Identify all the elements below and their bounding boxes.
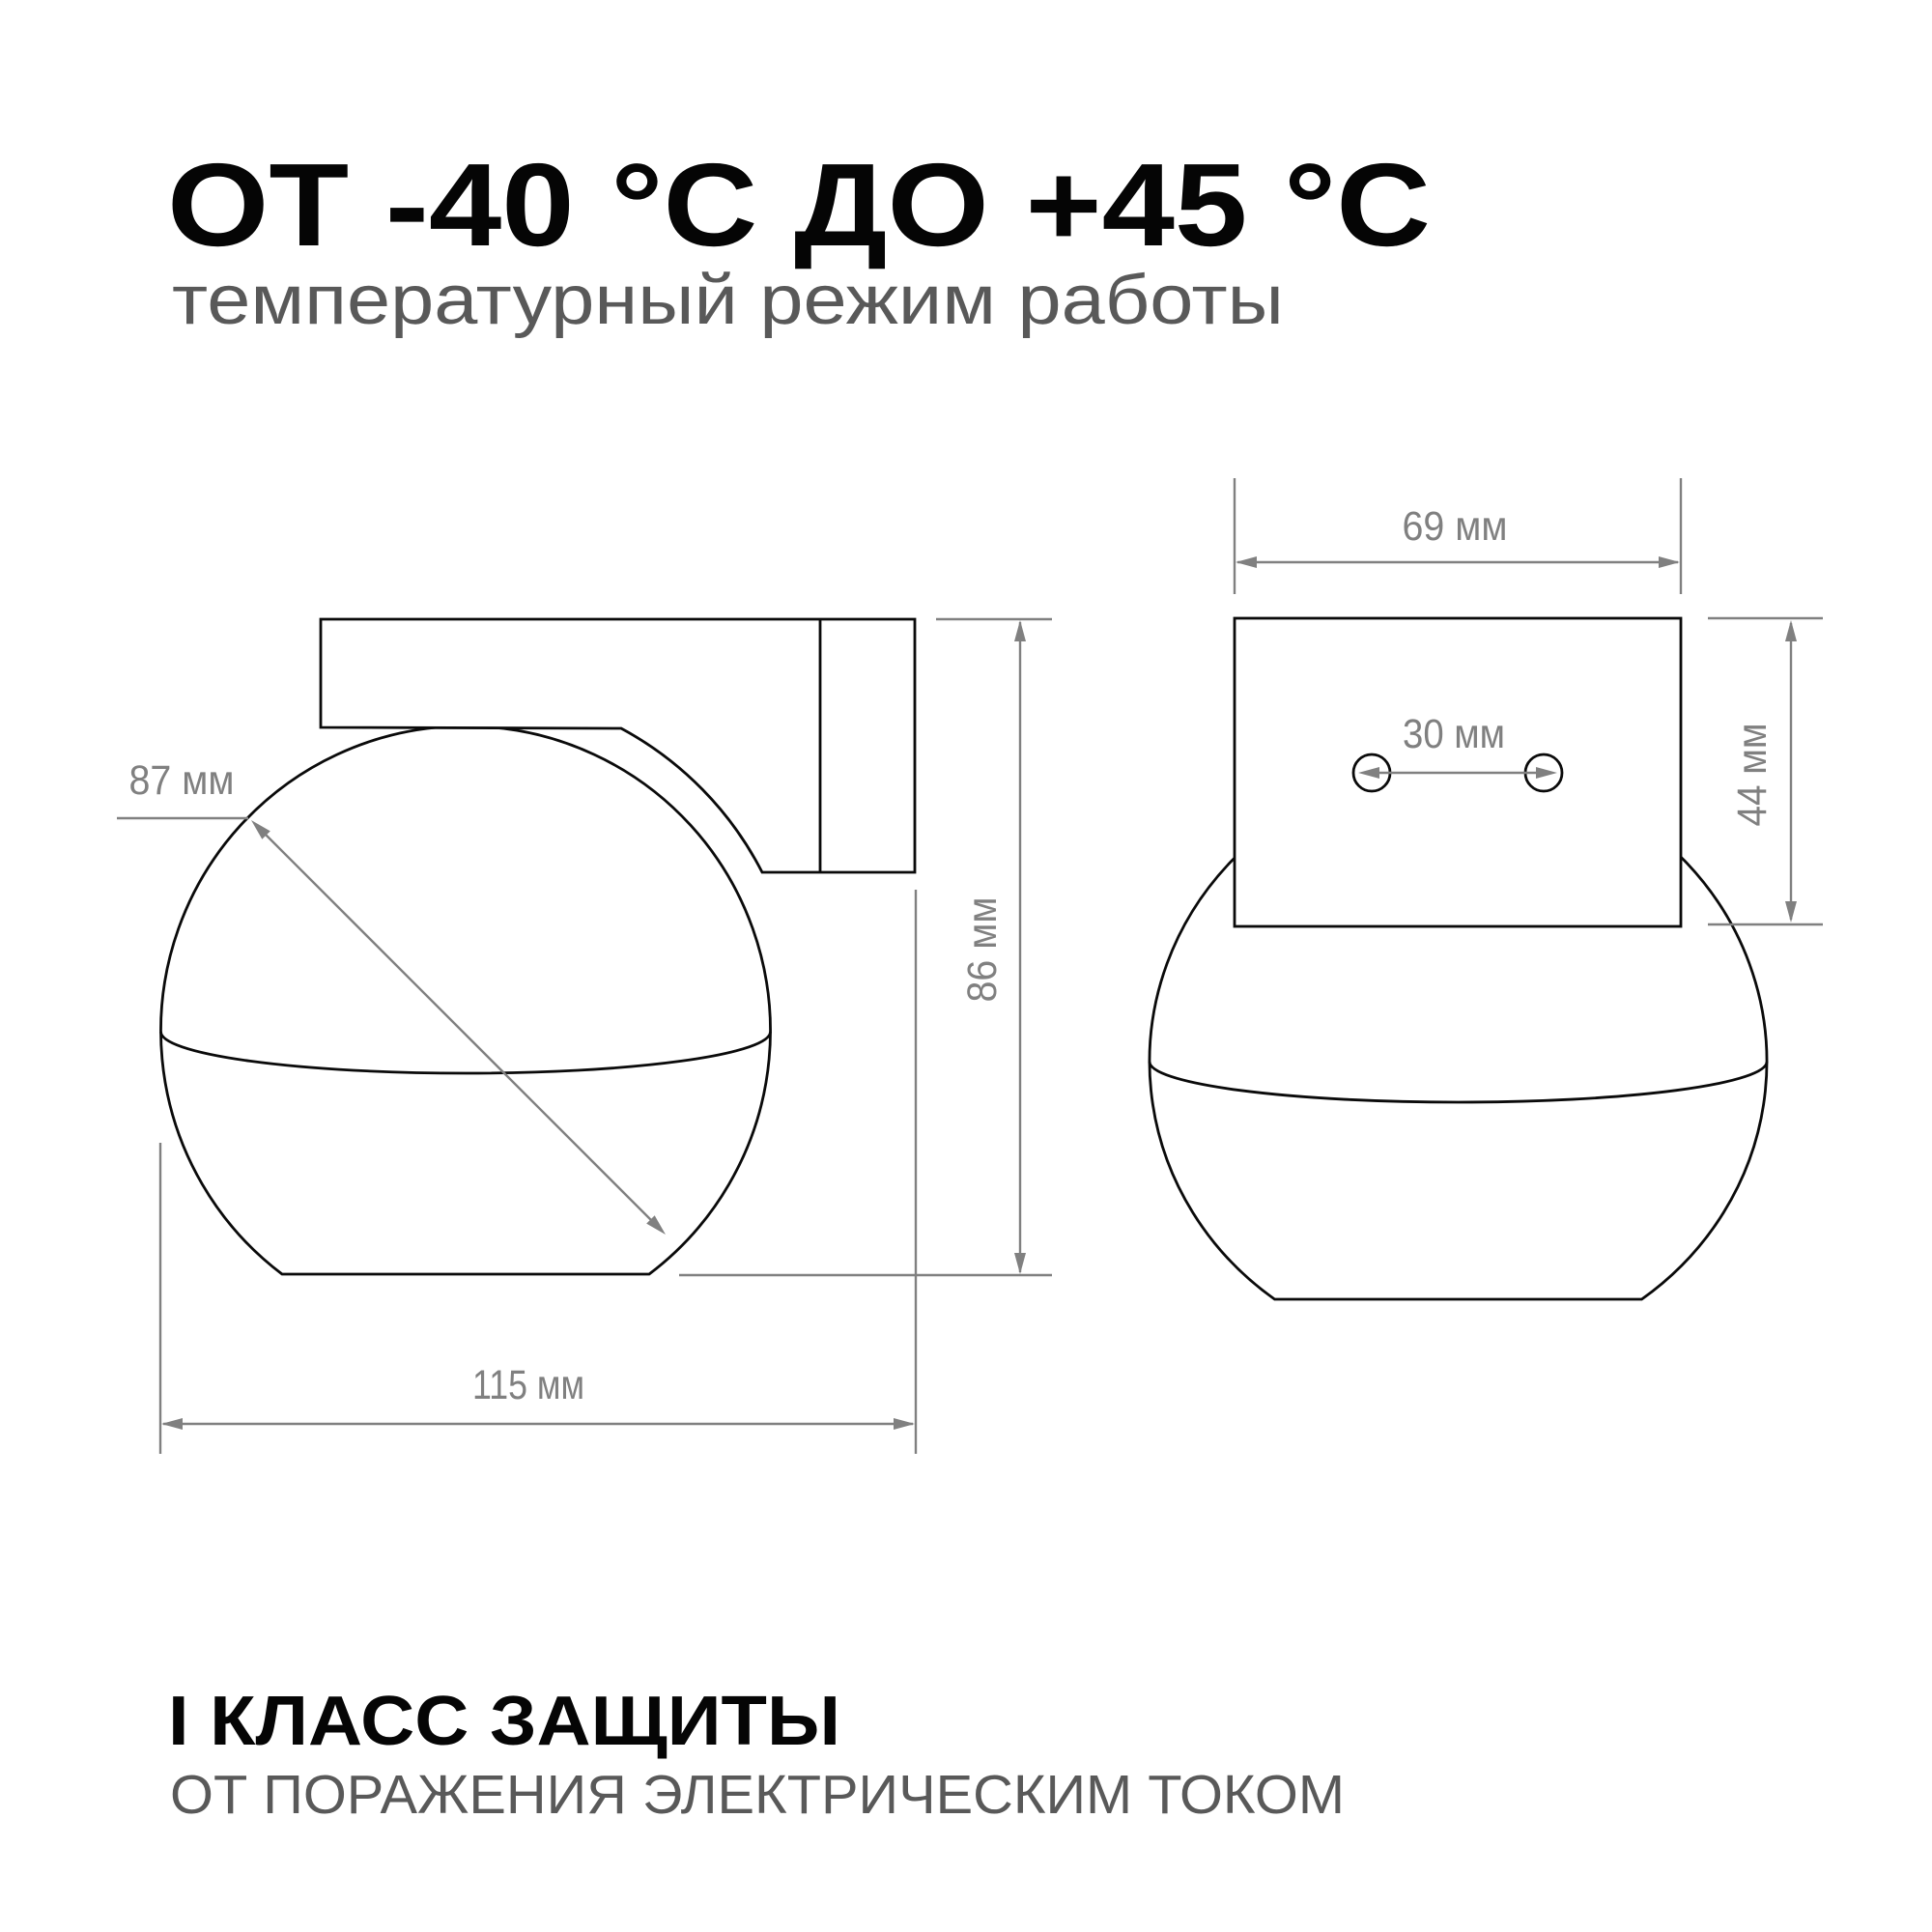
svg-text:температурный режим работы: температурный режим работы [172, 262, 1284, 339]
svg-text:69 мм: 69 мм [1403, 503, 1508, 550]
svg-text:I КЛАСС ЗАЩИТЫ: I КЛАСС ЗАЩИТЫ [168, 1683, 840, 1760]
svg-text:30 мм: 30 мм [1403, 711, 1505, 757]
svg-text:115 мм: 115 мм [472, 1362, 584, 1408]
svg-text:44 мм: 44 мм [1729, 724, 1776, 827]
svg-text:87 мм: 87 мм [129, 757, 235, 804]
svg-text:ОТ -40 °C ДО +45 °C: ОТ -40 °C ДО +45 °C [167, 139, 1431, 270]
svg-text:ОТ ПОРАЖЕНИЯ ЭЛЕКТРИЧЕСКИМ ТОК: ОТ ПОРАЖЕНИЯ ЭЛЕКТРИЧЕСКИМ ТОКОМ [170, 1764, 1345, 1826]
svg-text:86 мм: 86 мм [959, 897, 1006, 1003]
